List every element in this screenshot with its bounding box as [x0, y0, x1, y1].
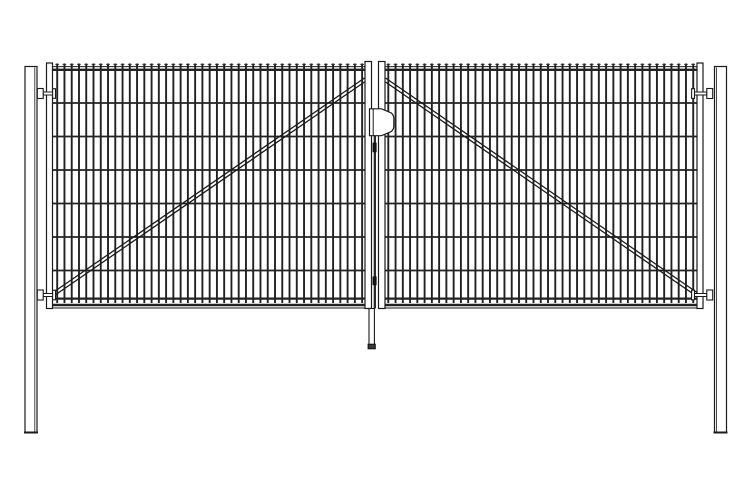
hinge-block — [37, 89, 43, 99]
drop-rod-guide — [373, 143, 377, 153]
drop-rod-guide — [373, 276, 377, 285]
hinge-pin — [695, 92, 707, 95]
hinge-block — [707, 89, 713, 99]
right-leaf-meeting-stile — [379, 62, 386, 309]
drop-rod-lower-section — [369, 309, 374, 346]
hinge-pin — [695, 294, 707, 297]
gate-drawing — [0, 0, 750, 500]
hinge-bolt-head — [53, 89, 56, 99]
left-leaf-meeting-stile — [365, 62, 372, 309]
drop-rod-foot — [368, 344, 375, 349]
hinge-bolt-head — [692, 89, 695, 99]
left-post — [25, 67, 37, 433]
drawing-canvas — [0, 0, 750, 500]
right-leaf-hanging-stile — [697, 63, 703, 309]
gate-lock — [370, 109, 394, 136]
hinge-block — [37, 290, 43, 300]
hinge-bolt-head — [692, 290, 695, 300]
left-leaf-hanging-stile — [47, 63, 53, 309]
hinge-bolt-head — [53, 290, 56, 300]
hinge-block — [707, 290, 713, 300]
